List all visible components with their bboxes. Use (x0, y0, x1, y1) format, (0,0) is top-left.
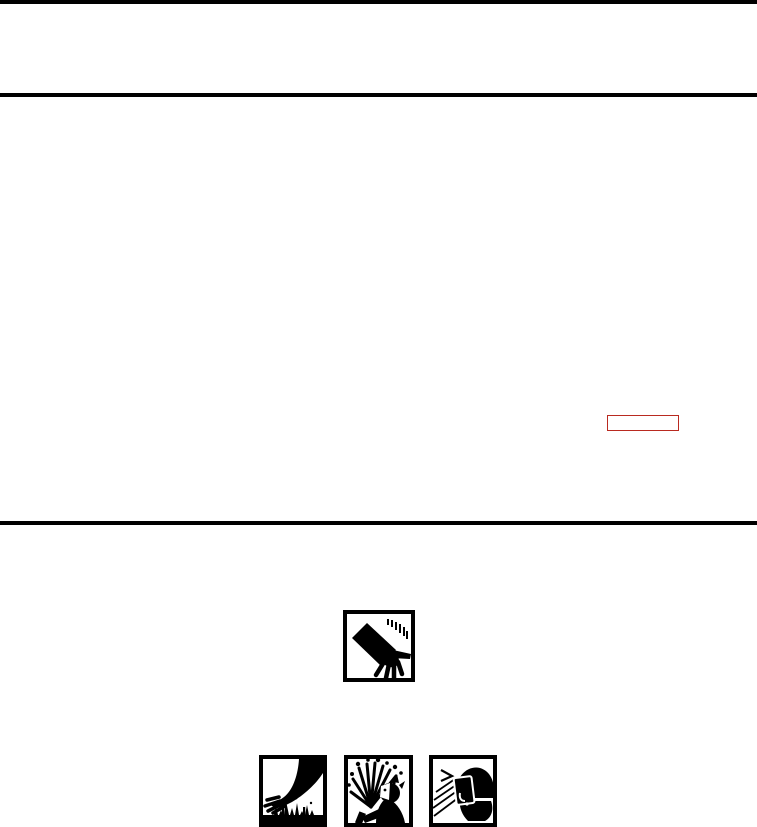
link-annotation-box[interactable] (607, 415, 679, 431)
hand-cut-hazard-icon (343, 610, 415, 682)
header-divider-rule (0, 93, 757, 97)
sharp-objects-hazard-icon (259, 755, 327, 827)
section-divider-rule (0, 521, 757, 525)
document-page (0, 0, 757, 827)
page-header-area (0, 4, 757, 93)
face-shield-protection-icon (429, 755, 497, 827)
fluid-splash-hazard-icon (344, 755, 413, 827)
